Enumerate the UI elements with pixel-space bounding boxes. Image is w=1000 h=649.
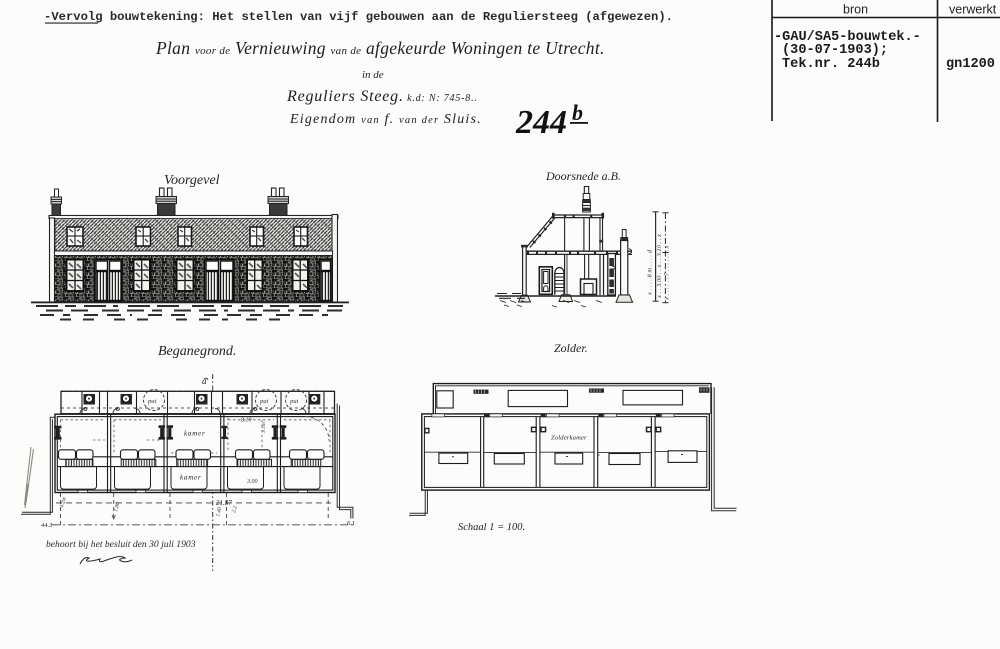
svg-text:244: 244 bbox=[515, 104, 567, 141]
svg-text:2.2: 2.2 bbox=[231, 505, 239, 513]
svg-text:x . . . . 8 m . . . . d: x . . . . 8 m . . . . d bbox=[647, 249, 654, 296]
svg-text:x . . . . . . 7 . . . . . . .: x . . . . . . 7 . . . . . . . x bbox=[663, 245, 670, 301]
svg-text:Plan voor de Vernieuwing van d: Plan voor de Vernieuwing van de afgekeur… bbox=[155, 38, 605, 58]
svg-text:Eigendom van f. van der Sluis.: Eigendom van f. van der Sluis. bbox=[289, 112, 482, 127]
svg-text:Zolderkamer: Zolderkamer bbox=[551, 435, 587, 442]
svg-text:Doorsnede a.B.: Doorsnede a.B. bbox=[545, 169, 621, 183]
svg-text:put: put bbox=[147, 398, 157, 405]
svg-text:4.2m: 4.2m bbox=[58, 496, 68, 508]
svg-text:(30-07-1903);: (30-07-1903); bbox=[782, 43, 888, 58]
svg-text:21.87: 21.87 bbox=[216, 499, 232, 507]
svg-text:3.00: 3.00 bbox=[246, 479, 258, 485]
svg-text:Zolder.: Zolder. bbox=[554, 341, 588, 355]
svg-text:in de: in de bbox=[362, 69, 384, 81]
svg-text:bron: bron bbox=[843, 3, 868, 17]
svg-text:Beganegrond.: Beganegrond. bbox=[158, 344, 236, 359]
svg-text:Voorgevel: Voorgevel bbox=[164, 173, 220, 188]
svg-text:1.80: 1.80 bbox=[113, 501, 121, 512]
svg-text:verwerkt: verwerkt bbox=[949, 3, 997, 17]
svg-text:put: put bbox=[289, 398, 299, 405]
svg-text:put: put bbox=[259, 398, 269, 405]
svg-text:44.3: 44.3 bbox=[41, 522, 53, 529]
svg-text:kamer: kamer bbox=[184, 430, 206, 438]
svg-text:6.1: 6.1 bbox=[347, 520, 355, 527]
svg-text:-Vervolg bouwtekening: Het ste: -Vervolg bouwtekening: Het stellen van v… bbox=[44, 10, 673, 24]
svg-text:kamer: kamer bbox=[180, 474, 202, 482]
svg-text:Tek.nr. 244b: Tek.nr. 244b bbox=[782, 57, 880, 72]
svg-text:1.40: 1.40 bbox=[214, 506, 223, 517]
svg-text:x . . 3.00 . . x . . 3.10 . .: x . . 3.00 . . x . . 3.10 . . x bbox=[656, 234, 663, 299]
svg-text:Reguliers Steeg. k.d: N: 745-8: Reguliers Steeg. k.d: N: 745-8.. bbox=[286, 88, 478, 105]
svg-text:8.19: 8.19 bbox=[241, 418, 252, 424]
svg-text:Schaal 1 = 100.: Schaal 1 = 100. bbox=[458, 522, 525, 533]
svg-text:a: a bbox=[202, 376, 207, 386]
svg-text:behoort bij het besluit den 30: behoort bij het besluit den 30 juli 1903 bbox=[46, 539, 196, 550]
svg-text:gn1200: gn1200 bbox=[946, 57, 995, 72]
svg-text:b: b bbox=[572, 100, 583, 125]
